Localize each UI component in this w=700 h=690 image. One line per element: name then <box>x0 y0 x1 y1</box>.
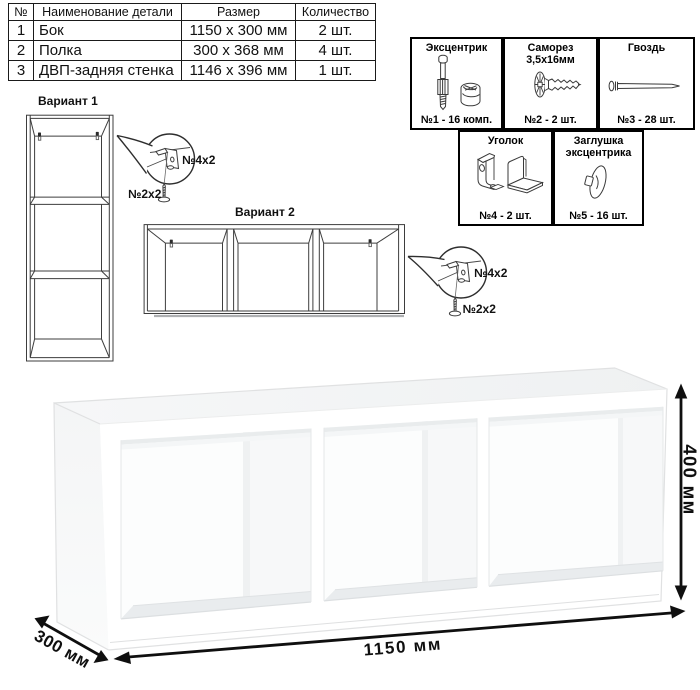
svg-text:400 мм: 400 мм <box>680 444 700 515</box>
